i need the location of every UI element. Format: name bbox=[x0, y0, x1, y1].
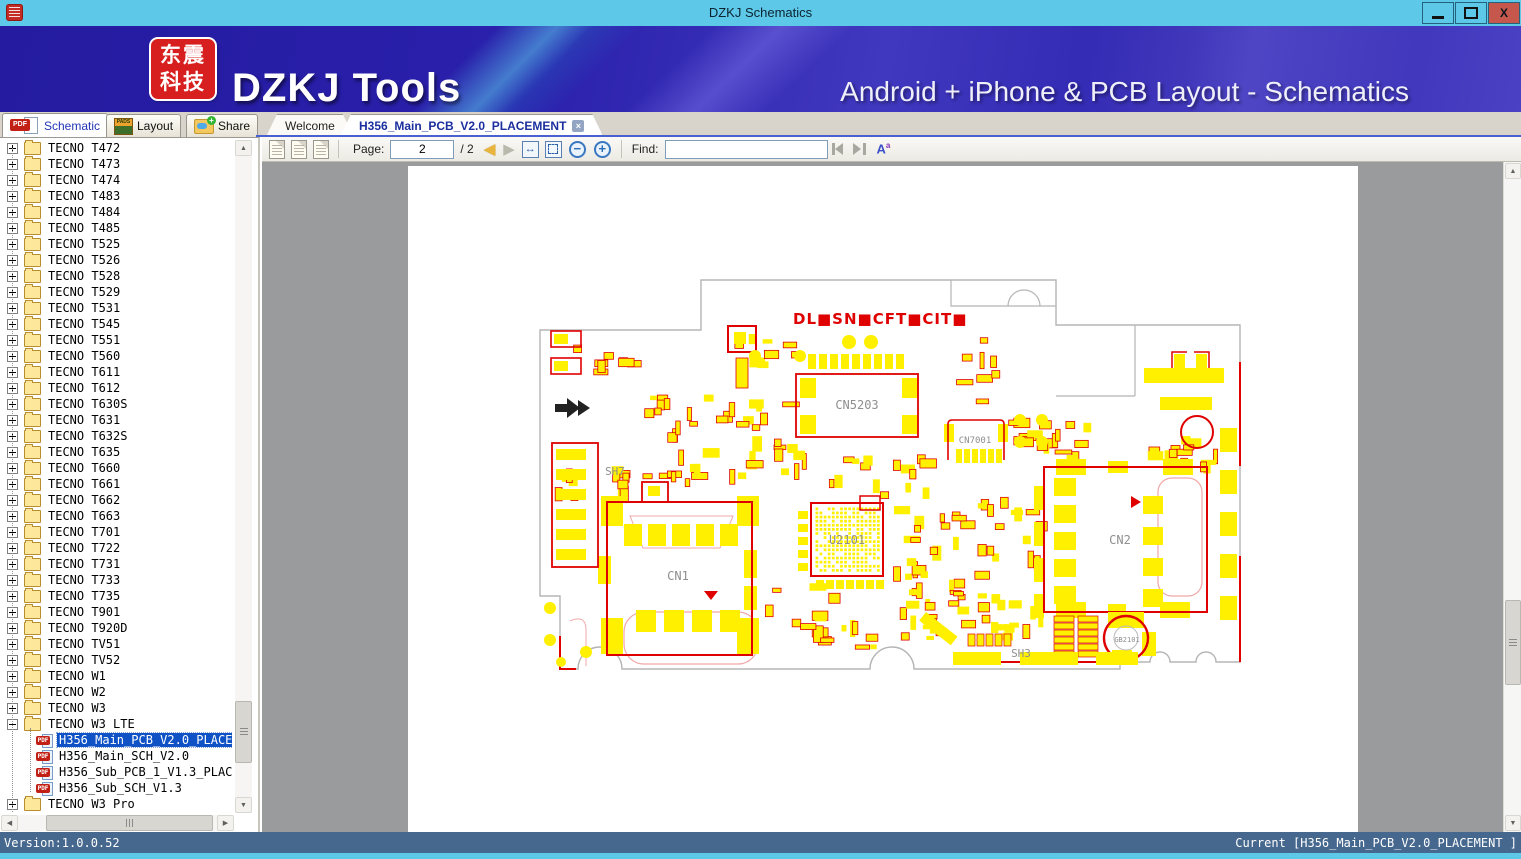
tree-scroll-down-button[interactable]: ▼ bbox=[235, 797, 252, 813]
pdf-page: DL■SN■CFT■CIT■CN5203CN7001U2101CN1CN2GB2… bbox=[408, 166, 1358, 832]
tree-vscrollbar-thumb[interactable] bbox=[235, 701, 252, 763]
tree-item-folder[interactable]: TECNO T525 bbox=[0, 236, 232, 252]
find-prev-icon[interactable] bbox=[831, 142, 846, 156]
tree-item-label: TECNO T483 bbox=[46, 189, 122, 203]
tree-item-label: TECNO T662 bbox=[46, 493, 122, 507]
folder-icon bbox=[24, 430, 41, 443]
tree-item-folder[interactable]: TECNO T631 bbox=[0, 412, 232, 428]
viewer-scroll-down-button[interactable]: ▼ bbox=[1505, 815, 1521, 831]
copy-page-icon[interactable] bbox=[269, 140, 285, 159]
prev-page-icon[interactable]: ◀ bbox=[484, 142, 496, 157]
tree-item-label: TECNO T735 bbox=[46, 589, 122, 603]
folder-icon bbox=[24, 318, 41, 331]
tree-item-pdf[interactable]: PDFH356_Sub_SCH_V1.3 bbox=[0, 780, 232, 796]
pdf-icon: PDF bbox=[10, 117, 40, 134]
tree-item-folder[interactable]: TECNO T611 bbox=[0, 364, 232, 380]
tree-item-folder[interactable]: TECNO T551 bbox=[0, 332, 232, 348]
tree-item-pdf[interactable]: PDFH356_Main_PCB_V2.0_PLACEMENT bbox=[0, 732, 232, 748]
tree-item-label: TECNO T731 bbox=[46, 557, 122, 571]
find-input[interactable] bbox=[665, 140, 828, 159]
tree-hscrollbar-thumb[interactable] bbox=[46, 815, 213, 831]
tree-item-pdf[interactable]: PDFH356_Sub_PCB_1_V1.3_PLACEMENT bbox=[0, 764, 232, 780]
schematic-tree-panel: TECNO T472TECNO T473TECNO T474TECNO T483… bbox=[0, 137, 260, 832]
tree-item-label: TECNO T560 bbox=[46, 349, 122, 363]
tree-item-folder[interactable]: TECNO T545 bbox=[0, 316, 232, 332]
folder-icon bbox=[24, 302, 41, 315]
tree-item-label: TECNO W3 bbox=[46, 701, 108, 715]
product-name: DZKJ Tools bbox=[232, 66, 461, 111]
folder-icon bbox=[24, 142, 41, 155]
tree-item-label: H356_Sub_SCH_V1.3 bbox=[57, 781, 184, 795]
page-total-label: / 2 bbox=[460, 142, 473, 156]
close-button[interactable]: X bbox=[1488, 2, 1520, 24]
tree-item-label: TECNO TV51 bbox=[46, 637, 122, 651]
folder-icon bbox=[24, 558, 41, 571]
tree-item-folder[interactable]: TECNO T662 bbox=[0, 492, 232, 508]
tree-item-folder[interactable]: TECNO T733 bbox=[0, 572, 232, 588]
status-bar: Version:1.0.0.52 Current [H356_Main_PCB_… bbox=[0, 832, 1521, 853]
folder-icon bbox=[24, 254, 41, 267]
viewer-vscrollbar-track[interactable]: ▲ ▼ bbox=[1503, 162, 1521, 832]
tree-item-label: TECNO T635 bbox=[46, 445, 122, 459]
pdf-file-icon: PDF bbox=[36, 750, 53, 763]
tree-item-label: TECNO T525 bbox=[46, 237, 122, 251]
tree-item-label: TECNO T920D bbox=[46, 621, 129, 635]
find-next-icon[interactable] bbox=[852, 142, 867, 156]
viewer-scroll-up-button[interactable]: ▲ bbox=[1505, 163, 1521, 179]
title-bar: DZKJ Schematics X bbox=[0, 0, 1521, 26]
zoom-out-icon[interactable]: − bbox=[569, 141, 586, 158]
svg-text:CN2: CN2 bbox=[1109, 533, 1131, 547]
folder-icon bbox=[24, 158, 41, 171]
tree-item-folder[interactable]: TECNO T635 bbox=[0, 444, 232, 460]
tree-item-pdf[interactable]: PDFH356_Main_SCH_V2.0 bbox=[0, 748, 232, 764]
tree-item-label: TECNO T485 bbox=[46, 221, 122, 235]
tree-item-label: TECNO TV52 bbox=[46, 653, 122, 667]
tree-item-folder[interactable]: TECNO T526 bbox=[0, 252, 232, 268]
svg-text:SH7: SH7 bbox=[605, 465, 625, 478]
folder-icon bbox=[24, 638, 41, 651]
tree-item-label: TECNO T631 bbox=[46, 413, 122, 427]
tree-item-label: H356_Main_PCB_V2.0_PLACEMENT bbox=[57, 733, 232, 747]
next-page-icon[interactable]: ▶ bbox=[503, 142, 515, 157]
folder-icon bbox=[24, 478, 41, 491]
font-size-icon[interactable]: Aa bbox=[876, 141, 890, 156]
svg-text:CN5203: CN5203 bbox=[835, 398, 878, 412]
tree-scroll-right-button[interactable]: ▶ bbox=[217, 815, 234, 831]
tree-item-folder[interactable]: TECNO T920D bbox=[0, 620, 232, 636]
folder-icon bbox=[24, 446, 41, 459]
tab-layout-label: Layout bbox=[137, 119, 173, 133]
folder-icon bbox=[24, 334, 41, 347]
tree-guide-line bbox=[30, 728, 31, 792]
tree-guide-line bbox=[12, 148, 13, 812]
fit-page-icon[interactable] bbox=[545, 141, 562, 158]
viewer-vscrollbar-thumb[interactable] bbox=[1505, 600, 1521, 685]
pdf-toolbar: Page: / 2 ◀ ▶ ↔ − + Find: Aa bbox=[262, 137, 1521, 162]
tree-item-folder[interactable]: TECNO W1 bbox=[0, 668, 232, 684]
folder-icon bbox=[24, 366, 41, 379]
folder-icon bbox=[24, 414, 41, 427]
multi-page-icon[interactable] bbox=[313, 140, 329, 159]
tree-item-folder[interactable]: TECNO T472 bbox=[0, 140, 232, 156]
folder-icon bbox=[24, 350, 41, 363]
tab-bar: PDF Schematic PADS Layout + Share Welcom… bbox=[0, 112, 1521, 137]
tree-item-folder[interactable]: TECNO T531 bbox=[0, 300, 232, 316]
tree-item-label: TECNO T901 bbox=[46, 605, 122, 619]
tree-item-label: TECNO T663 bbox=[46, 509, 122, 523]
folder-icon bbox=[24, 462, 41, 475]
folder-icon bbox=[24, 574, 41, 587]
doc-tab-placement[interactable]: H356_Main_PCB_V2.0_PLACEMENT × bbox=[340, 114, 603, 137]
version-label: Version:1.0.0.52 bbox=[4, 836, 120, 850]
tab-schematic[interactable]: PDF Schematic bbox=[2, 113, 108, 137]
tree-item-label: TECNO T661 bbox=[46, 477, 122, 491]
tree-item-folder[interactable]: TECNO TV51 bbox=[0, 636, 232, 652]
find-label: Find: bbox=[632, 142, 659, 156]
svg-text:CN1: CN1 bbox=[667, 569, 689, 583]
folder-icon bbox=[24, 286, 41, 299]
tree-item-label: TECNO T611 bbox=[46, 365, 122, 379]
tree-item-label: TECNO W2 bbox=[46, 685, 108, 699]
tree-item-folder[interactable]: TECNO W2 bbox=[0, 684, 232, 700]
svg-text:DL■SN■CFT■CIT■: DL■SN■CFT■CIT■ bbox=[793, 310, 967, 328]
tree-item-folder[interactable]: TECNO W3 LTE bbox=[0, 716, 232, 732]
tree-item-label: TECNO T612 bbox=[46, 381, 122, 395]
share-icon: + bbox=[194, 119, 214, 134]
tree-scroll-left-button[interactable]: ◀ bbox=[1, 815, 18, 831]
folder-icon bbox=[24, 398, 41, 411]
current-document-label: Current [H356_Main_PCB_V2.0_PLACEMENT ] bbox=[1235, 836, 1517, 850]
window-title: DZKJ Schematics bbox=[0, 0, 1521, 26]
tab-share[interactable]: + Share bbox=[186, 114, 258, 137]
tree-item-folder[interactable]: TECNO T701 bbox=[0, 524, 232, 540]
folder-icon bbox=[24, 590, 41, 603]
tree-item-folder[interactable]: TECNO T483 bbox=[0, 188, 232, 204]
tree-item-folder[interactable]: TECNO W3 Pro bbox=[0, 796, 232, 812]
folder-icon bbox=[24, 190, 41, 203]
tree-item-label: TECNO T722 bbox=[46, 541, 122, 555]
tree-item-folder[interactable]: TECNO T661 bbox=[0, 476, 232, 492]
tree-scroll-up-button[interactable]: ▲ bbox=[235, 140, 252, 156]
folder-icon bbox=[24, 510, 41, 523]
doc-tab-close-icon[interactable]: × bbox=[572, 120, 584, 132]
svg-text:SH3: SH3 bbox=[1011, 647, 1031, 660]
svg-text:U2101: U2101 bbox=[829, 533, 865, 547]
folder-icon bbox=[24, 686, 41, 699]
tree-item-label: TECNO W3 Pro bbox=[46, 797, 137, 811]
doc-tab-welcome[interactable]: Welcome bbox=[266, 114, 354, 137]
header-banner: 东震科技 DZKJ Tools Android + iPhone & PCB L… bbox=[0, 26, 1521, 112]
model-tree: TECNO T472TECNO T473TECNO T474TECNO T483… bbox=[0, 140, 232, 814]
folder-icon bbox=[24, 606, 41, 619]
tree-item-folder[interactable]: TECNO T485 bbox=[0, 220, 232, 236]
tree-item-folder[interactable]: TECNO T529 bbox=[0, 284, 232, 300]
folder-icon bbox=[24, 494, 41, 507]
folder-icon bbox=[24, 222, 41, 235]
tree-item-label: H356_Sub_PCB_1_V1.3_PLACEMENT bbox=[57, 765, 232, 779]
tree-item-label: TECNO T701 bbox=[46, 525, 122, 539]
tree-item-label: TECNO T545 bbox=[46, 317, 122, 331]
pdf-file-icon: PDF bbox=[36, 766, 53, 779]
pcb-placement-drawing: DL■SN■CFT■CIT■CN5203CN7001U2101CN1CN2GB2… bbox=[408, 166, 1358, 832]
pads-icon: PADS bbox=[114, 118, 133, 135]
tab-layout[interactable]: PADS Layout bbox=[106, 114, 181, 137]
tree-item-label: TECNO T531 bbox=[46, 301, 122, 315]
tab-schematic-label: Schematic bbox=[44, 119, 100, 133]
tree-item-folder[interactable]: TECNO T632S bbox=[0, 428, 232, 444]
copy-pages-icon[interactable] bbox=[291, 140, 307, 159]
svg-text:GB2101: GB2101 bbox=[1114, 636, 1139, 644]
minimize-button[interactable] bbox=[1422, 2, 1454, 24]
svg-text:CN7001: CN7001 bbox=[959, 436, 992, 446]
tree-item-label: TECNO W3 LTE bbox=[46, 717, 137, 731]
doc-tab-placement-label: H356_Main_PCB_V2.0_PLACEMENT bbox=[359, 119, 566, 133]
fit-width-icon[interactable]: ↔ bbox=[522, 141, 539, 158]
tree-item-label: TECNO T660 bbox=[46, 461, 122, 475]
tree-item-folder[interactable]: TECNO T612 bbox=[0, 380, 232, 396]
folder-icon bbox=[24, 718, 41, 731]
folder-icon bbox=[24, 798, 41, 811]
tree-item-label: TECNO W1 bbox=[46, 669, 108, 683]
folder-icon bbox=[24, 382, 41, 395]
folder-icon bbox=[24, 622, 41, 635]
tree-item-label: TECNO T632S bbox=[46, 429, 129, 443]
tree-item-folder[interactable]: TECNO T560 bbox=[0, 348, 232, 364]
folder-icon bbox=[24, 542, 41, 555]
tree-item-label: TECNO T473 bbox=[46, 157, 122, 171]
tree-item-folder[interactable]: TECNO T484 bbox=[0, 204, 232, 220]
tree-item-folder[interactable]: TECNO T473 bbox=[0, 156, 232, 172]
folder-icon bbox=[24, 654, 41, 667]
tree-item-label: TECNO T630S bbox=[46, 397, 129, 411]
tree-item-folder[interactable]: TECNO TV52 bbox=[0, 652, 232, 668]
tree-item-label: TECNO T472 bbox=[46, 141, 122, 155]
folder-icon bbox=[24, 174, 41, 187]
window-bottom-edge bbox=[0, 853, 1521, 859]
tree-item-folder[interactable]: TECNO T663 bbox=[0, 508, 232, 524]
tree-item-folder[interactable]: TECNO T630S bbox=[0, 396, 232, 412]
pdf-viewer: DL■SN■CFT■CIT■CN5203CN7001U2101CN1CN2GB2… bbox=[262, 162, 1503, 832]
banner-tagline: Android + iPhone & PCB Layout - Schemati… bbox=[840, 76, 1409, 108]
folder-icon bbox=[24, 270, 41, 283]
tree-item-label: TECNO T528 bbox=[46, 269, 122, 283]
tab-share-label: Share bbox=[218, 119, 250, 133]
pdf-file-icon: PDF bbox=[36, 734, 53, 747]
tree-item-label: TECNO T526 bbox=[46, 253, 122, 267]
page-input[interactable] bbox=[390, 140, 454, 159]
tree-item-folder[interactable]: TECNO T731 bbox=[0, 556, 232, 572]
folder-icon bbox=[24, 206, 41, 219]
folder-icon bbox=[24, 238, 41, 251]
folder-icon bbox=[24, 526, 41, 539]
tree-item-folder[interactable]: TECNO T660 bbox=[0, 460, 232, 476]
doc-tab-welcome-label: Welcome bbox=[285, 119, 335, 133]
tree-item-folder[interactable]: TECNO T528 bbox=[0, 268, 232, 284]
tree-item-label: TECNO T474 bbox=[46, 173, 122, 187]
tree-item-label: TECNO T551 bbox=[46, 333, 122, 347]
page-label: Page: bbox=[353, 142, 384, 156]
tree-item-label: TECNO T529 bbox=[46, 285, 122, 299]
tree-item-folder[interactable]: TECNO T901 bbox=[0, 604, 232, 620]
brand-logo: 东震科技 bbox=[151, 39, 215, 99]
tree-item-folder[interactable]: TECNO W3 bbox=[0, 700, 232, 716]
pdf-file-icon: PDF bbox=[36, 782, 53, 795]
tree-item-folder[interactable]: TECNO T474 bbox=[0, 172, 232, 188]
folder-icon bbox=[24, 670, 41, 683]
tree-item-label: H356_Main_SCH_V2.0 bbox=[57, 749, 191, 763]
tree-item-folder[interactable]: TECNO T735 bbox=[0, 588, 232, 604]
folder-icon bbox=[24, 702, 41, 715]
tree-item-label: TECNO T484 bbox=[46, 205, 122, 219]
tree-item-folder[interactable]: TECNO T722 bbox=[0, 540, 232, 556]
maximize-button[interactable] bbox=[1455, 2, 1487, 24]
tree-item-label: TECNO T733 bbox=[46, 573, 122, 587]
zoom-in-icon[interactable]: + bbox=[594, 141, 611, 158]
